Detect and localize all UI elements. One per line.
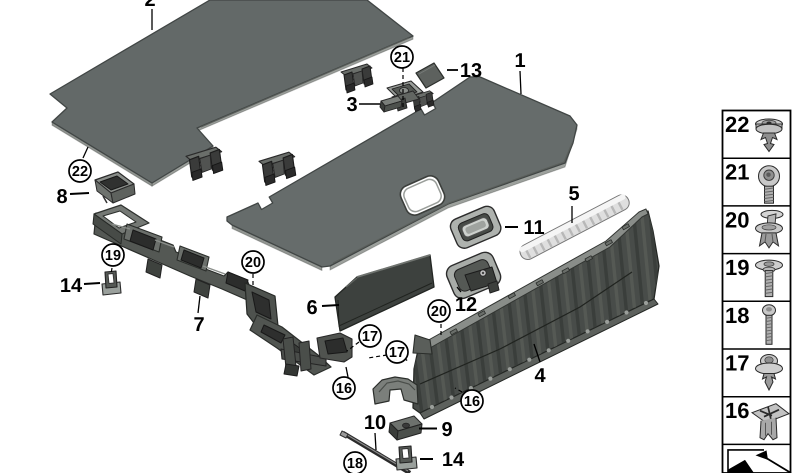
svg-text:19: 19 (105, 248, 121, 264)
svg-text:18: 18 (725, 303, 749, 328)
svg-text:21: 21 (394, 50, 410, 66)
svg-text:14: 14 (442, 449, 465, 471)
svg-text:4: 4 (534, 365, 546, 387)
svg-text:22: 22 (72, 164, 88, 180)
svg-text:17: 17 (389, 345, 405, 361)
svg-text:7: 7 (193, 314, 204, 336)
svg-text:19: 19 (725, 255, 749, 280)
svg-text:13: 13 (460, 60, 482, 82)
svg-text:17: 17 (362, 329, 378, 345)
svg-text:20: 20 (245, 255, 261, 271)
svg-text:22: 22 (725, 112, 749, 137)
svg-text:2: 2 (144, 0, 155, 11)
svg-text:16: 16 (725, 398, 749, 423)
svg-text:18: 18 (347, 456, 363, 472)
svg-text:20: 20 (431, 304, 447, 320)
svg-text:20: 20 (725, 207, 749, 232)
svg-text:6: 6 (306, 297, 317, 319)
svg-text:17: 17 (725, 351, 749, 376)
svg-text:14: 14 (60, 275, 83, 297)
svg-text:1: 1 (514, 50, 525, 72)
svg-text:5: 5 (568, 183, 579, 205)
svg-text:16: 16 (336, 381, 352, 397)
svg-text:3: 3 (346, 94, 357, 116)
svg-text:21: 21 (725, 160, 749, 185)
svg-text:16: 16 (464, 394, 480, 410)
svg-text:10: 10 (364, 412, 386, 434)
svg-text:9: 9 (441, 419, 452, 441)
svg-text:8: 8 (56, 186, 67, 208)
svg-text:12: 12 (455, 294, 477, 316)
